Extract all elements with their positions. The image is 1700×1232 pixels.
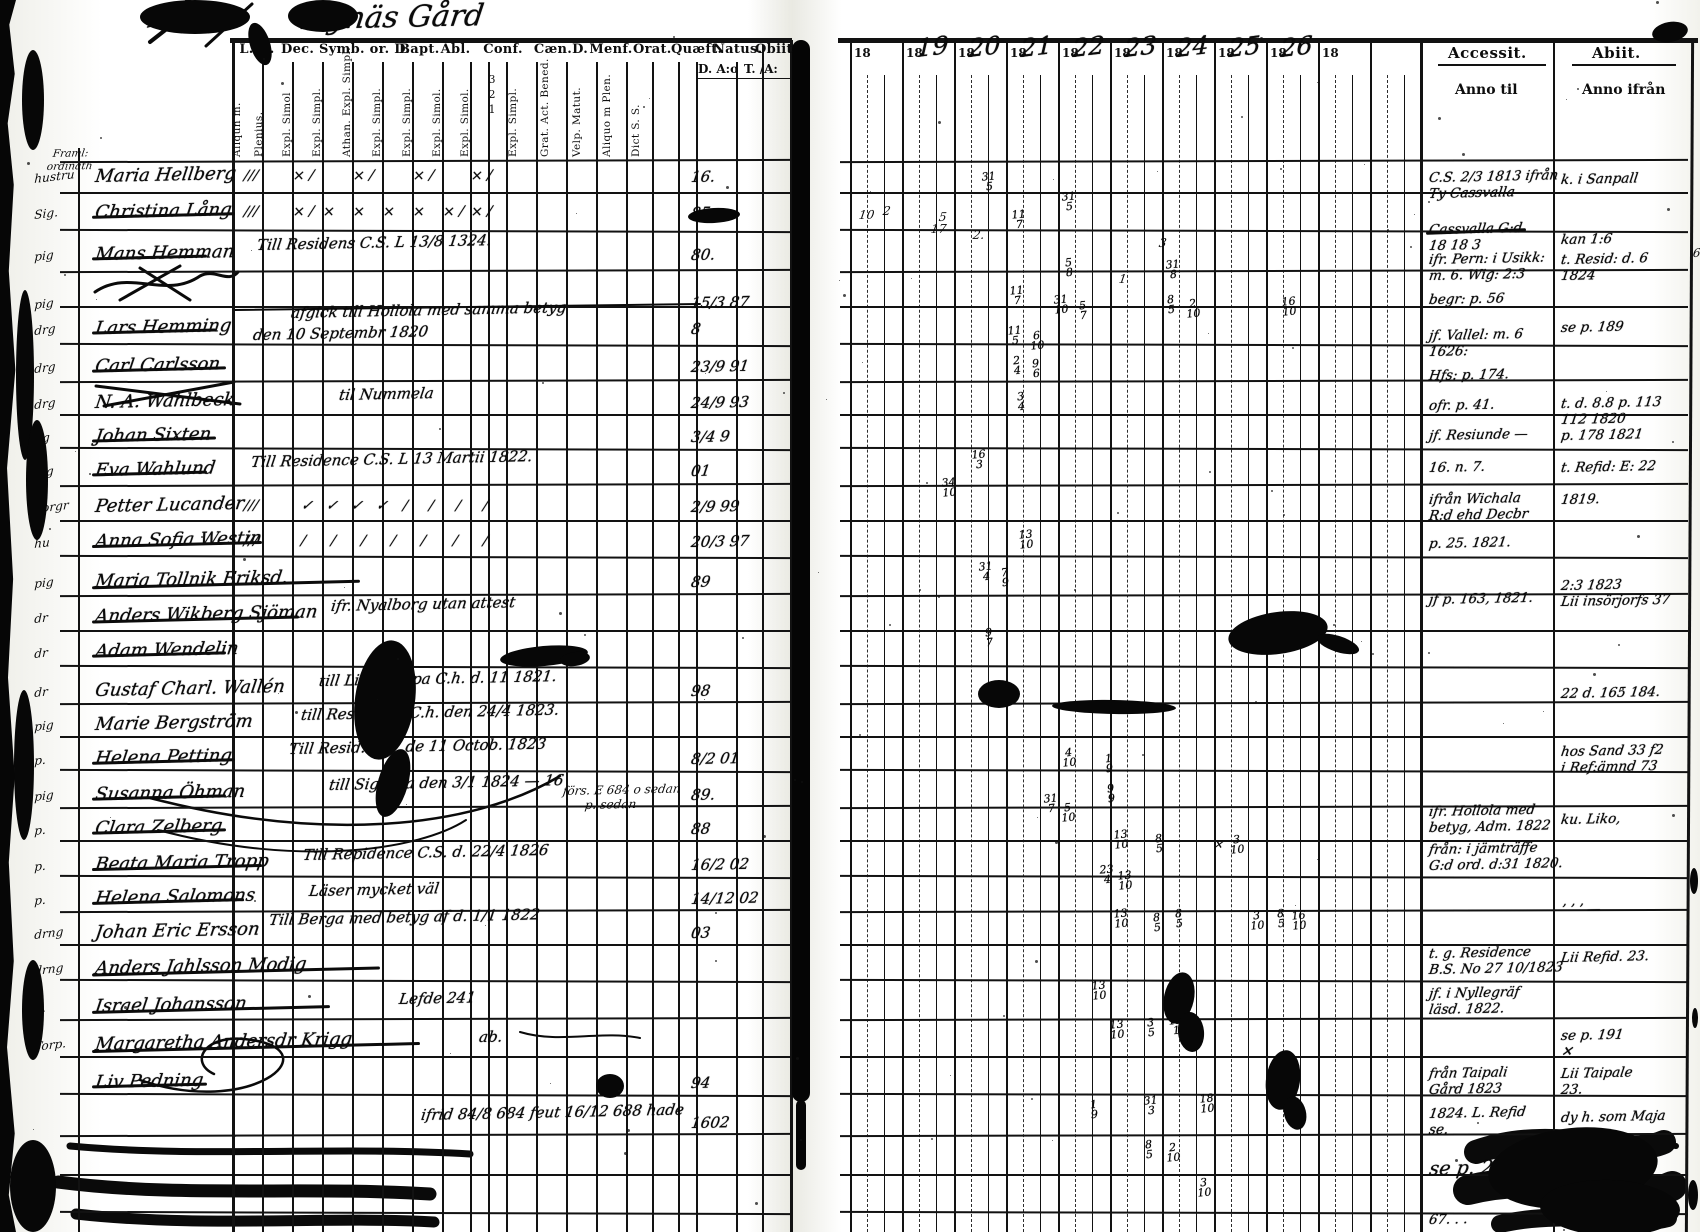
paper-speck — [1637, 535, 1640, 538]
ink-blot — [22, 960, 44, 1060]
paper-speck — [763, 835, 766, 838]
year-handwritten: 19 — [916, 30, 949, 63]
year-subcolumn-dashed-rule — [1179, 75, 1180, 1232]
examination-mark: ✓ — [300, 498, 314, 514]
column-subheader: Aliquo m Plen. — [602, 63, 613, 157]
year-subcolumn-rule — [936, 75, 937, 1232]
row-rule — [840, 306, 1688, 308]
birth-year-value: 80. — [690, 246, 716, 264]
column-subheader: Expl. Simol. — [432, 63, 443, 157]
paper-speck — [826, 399, 827, 400]
note-abiit: Lii Refid. 23. — [1560, 948, 1650, 966]
paper-speck — [526, 740, 527, 741]
row-rule — [840, 192, 1688, 194]
date-fraction: 163 — [968, 449, 990, 471]
examination-mark: × — [382, 204, 396, 220]
paper-speck — [1428, 652, 1430, 654]
row-name: Maria Hellberg — [94, 163, 237, 187]
note-abiit: se p. 191 — [1560, 1027, 1625, 1044]
row-prefix: pig — [34, 575, 54, 591]
name-column-divider — [232, 40, 235, 1232]
note-accessit: G:d ord. d:31 1820. — [1428, 855, 1564, 874]
right-page-top-border — [838, 38, 1698, 43]
column-group-header: Dec. Symb. or. D. — [281, 42, 399, 57]
date-mark: 10 — [858, 208, 875, 222]
examination-mark: × / — [442, 204, 465, 220]
date-fraction: 310 — [1246, 910, 1268, 932]
date-fraction: 85 — [1138, 1139, 1160, 1161]
date-fraction: 58 — [1058, 257, 1080, 279]
paper-speck — [1283, 514, 1285, 516]
paper-speck — [715, 912, 717, 914]
examination-mark: × / — [412, 168, 435, 184]
row-annotation: Lefde 241 — [398, 988, 477, 1008]
obiit-column-rule — [762, 45, 764, 1232]
note-accessit: B.S. No 27 10/1823 — [1428, 959, 1564, 978]
paper-speck — [1414, 214, 1415, 215]
date-fraction: 510 — [1057, 802, 1079, 824]
row-prefix: drg — [34, 360, 56, 376]
note-accessit: Gård 1823 — [1428, 1080, 1503, 1098]
birth-year-value: 16. — [690, 168, 716, 186]
note-abiit: ʼ ʼ ʼ — — [1560, 901, 1602, 918]
row-name: Marie Bergström — [94, 711, 254, 735]
paper-speck — [450, 1053, 451, 1054]
paper-speck — [1622, 688, 1624, 690]
row-prefix: pig — [34, 788, 54, 804]
note-accessit: Ty Cassvalla — [1428, 184, 1516, 202]
row-prefix: pig — [34, 296, 54, 312]
birth-year-value: 1602 — [690, 1113, 731, 1132]
row-name: Johan Eric Ersson — [94, 919, 261, 943]
note-accessit: från Taipali — [1428, 1064, 1509, 1082]
date-fraction: 1310 — [1114, 870, 1136, 892]
note-accessit: m. 6. Wig: 2:3 — [1428, 266, 1526, 284]
date-fraction: 1310 — [1110, 908, 1132, 930]
date-mark: 2 — [882, 204, 892, 218]
pen-flourish — [520, 1032, 640, 1038]
note-abiit: 112 1820 — [1560, 411, 1627, 428]
note-abiit: t. d. 8.8 p. 113 — [1560, 394, 1662, 412]
row-annotation: p. sedan — [584, 797, 637, 812]
paper-speck — [1333, 624, 1335, 626]
paper-speck — [1438, 117, 1441, 120]
date-fraction: 19 — [1098, 753, 1120, 775]
date-fraction: 115 — [1004, 325, 1026, 347]
note-accessit: R:d ehd Decbr — [1428, 506, 1529, 524]
row-annotation: til Nummela — [338, 384, 435, 404]
examination-mark: × / — [292, 204, 315, 220]
column-group-header: Obiit — [755, 42, 791, 57]
note-accessit: 67. . . — [1428, 1211, 1469, 1228]
column-subheader: Plenius. — [254, 63, 265, 157]
paper-speck — [1364, 164, 1365, 165]
date-fraction: 1310 — [1015, 529, 1037, 551]
note-abiit: 1824 — [1560, 267, 1597, 284]
paper-speck — [1317, 859, 1318, 860]
paper-speck — [406, 804, 407, 805]
note-abiit: kan 1:6 — [1560, 231, 1613, 248]
paper-speck — [1672, 814, 1675, 817]
paper-speck — [839, 280, 840, 281]
paper-speck — [201, 536, 203, 538]
row-annotation: ab. — [478, 1028, 504, 1046]
row-annotation: den 10 Septembr 1820 — [252, 322, 429, 344]
paper-speck — [870, 191, 871, 192]
row-prefix: p. — [34, 753, 46, 768]
year-subcolumn-dashed-rule — [1127, 75, 1128, 1232]
paper-speck — [124, 1006, 127, 1009]
column-subheader-123: 321 — [485, 72, 499, 117]
paper-speck — [1074, 589, 1076, 591]
paper-speck — [1618, 644, 1620, 646]
date-fraction: 117 — [1006, 285, 1028, 307]
date-mark: 3 — [1158, 236, 1168, 250]
ink-blot — [978, 680, 1020, 708]
column-subheader: Expl. Simpl. — [402, 63, 413, 157]
row-prefix: dr — [34, 610, 48, 626]
row-name: Beata Maria Tropp — [94, 850, 270, 875]
year-column-rule — [1162, 42, 1164, 1232]
row-rule — [60, 414, 792, 416]
paper-speck — [584, 634, 586, 636]
paper-speck — [64, 274, 66, 276]
examination-mark: × — [352, 204, 366, 220]
examination-mark: ✓ — [350, 498, 364, 514]
row-name: Gustaf Charl. Wallén — [94, 676, 286, 701]
year-subcolumn-rule — [1144, 75, 1145, 1232]
birth-year-value: 20/3 97 — [690, 532, 750, 551]
row-rule — [840, 944, 1688, 946]
year-column-rule — [902, 42, 904, 1232]
paper-speck — [33, 1129, 34, 1130]
paper-speck — [377, 699, 378, 700]
paper-speck — [1428, 201, 1430, 203]
paper-speck — [818, 572, 819, 573]
ink-blot — [596, 1074, 624, 1098]
note-accessit: C.S. 2/3 1813 ifrån — [1428, 167, 1559, 186]
paper-speck — [1255, 701, 1257, 703]
paper-speck — [741, 379, 742, 380]
paper-speck — [1157, 171, 1158, 172]
birth-year-value: 23/9 91 — [690, 357, 750, 376]
paper-speck — [1503, 723, 1504, 724]
paper-speck — [643, 106, 645, 108]
row-prefix: Sig. — [34, 205, 58, 222]
date-fraction: 79 — [994, 567, 1016, 589]
birth-year-value: 8 — [690, 320, 702, 338]
paper-speck — [550, 1083, 551, 1084]
note-abiit: 22 d. 165 184. — [1560, 684, 1661, 702]
date-fraction: 1810 — [1196, 1093, 1218, 1115]
note-abiit: ku. Liko, — [1560, 811, 1622, 828]
date-mark: 17 — [930, 222, 947, 236]
row-rule — [840, 840, 1688, 842]
examination-mark: × / — [470, 168, 493, 184]
date-fraction: 313 — [1140, 1095, 1162, 1117]
paper-speck — [1690, 368, 1691, 369]
paper-speck — [251, 250, 252, 251]
paper-speck — [715, 960, 717, 962]
paper-speck — [1387, 229, 1389, 231]
ink-smear — [70, 1146, 470, 1154]
column-group-header: Conf. — [473, 42, 533, 57]
row-rule — [60, 944, 792, 946]
column-subheader: Velp. Matut. — [572, 63, 583, 157]
note-abiit: Lii Taipale — [1560, 1065, 1634, 1082]
row-name: N. A. Wahlbeck — [94, 389, 236, 413]
note-accessit: ifrån Wichala — [1428, 490, 1522, 508]
note-accessit: begr: p. 56 — [1428, 290, 1505, 308]
paper-speck — [950, 1075, 951, 1076]
year-printed-prefix: 18 — [1322, 46, 1339, 60]
date-fraction: 315 — [1058, 191, 1080, 213]
year-column-rule — [850, 42, 852, 1232]
paper-speck — [1260, 37, 1263, 40]
note-abiit: p. 178 1821 — [1560, 426, 1644, 444]
paper-speck — [1118, 1021, 1119, 1022]
paper-speck — [576, 213, 577, 214]
paper-speck — [542, 382, 544, 384]
paper-speck — [27, 162, 30, 165]
year-subcolumn-dashed-rule — [919, 75, 920, 1232]
paper-speck — [89, 473, 91, 475]
paper-speck — [783, 392, 785, 394]
examination-mark: × / — [352, 168, 375, 184]
paper-speck — [1292, 347, 1294, 349]
column-subheader: Expl. Simpl. — [312, 63, 323, 157]
row-name: Clara Zelberg — [94, 815, 224, 839]
date-fraction: 1310 — [1110, 829, 1132, 851]
ink-blot — [140, 0, 250, 34]
birth-year-value: 03 — [690, 924, 712, 942]
paper-speck — [1037, 817, 1038, 818]
year-column-rule — [954, 42, 956, 1232]
paper-speck — [862, 362, 863, 363]
note-accessit: Hfs: p. 174. — [1428, 366, 1510, 384]
paper-speck — [704, 699, 705, 700]
note-abiit: k. i Sanpall — [1560, 170, 1639, 188]
year-subcolumn-rule — [1196, 75, 1197, 1232]
examination-mark: /// — [243, 168, 259, 184]
paper-speck — [1667, 208, 1670, 211]
year-subcolumn-dashed-rule — [1335, 75, 1336, 1232]
birth-year-value: 89. — [690, 786, 716, 804]
note-accessit: se. — [1428, 1122, 1449, 1138]
scanned-parish-register: Nynäs Gård 18 7 Accessit. Anno til Abiit… — [0, 0, 1700, 1232]
row-rule — [840, 520, 1688, 522]
ink-blot — [1688, 1180, 1698, 1210]
date-fraction: 3110 — [1050, 294, 1072, 316]
note-abiit: 23. — [1560, 1082, 1584, 1098]
paper-speck — [1040, 424, 1041, 425]
date-fraction: 210 — [1182, 298, 1204, 320]
paper-speck — [100, 137, 102, 139]
examination-mark: /// — [243, 204, 259, 220]
row-rule — [60, 192, 792, 194]
paper-speck — [308, 995, 311, 998]
year-subcolumn-rule — [1300, 75, 1301, 1232]
paper-speck — [1035, 960, 1038, 963]
row-annotation: Läser mycket väl — [308, 879, 440, 900]
examination-mark: ✓ — [375, 498, 389, 514]
paper-speck — [1563, 1229, 1565, 1231]
note-abiit: 2:3 1823 — [1560, 577, 1623, 594]
row-name: Petter Lucander — [94, 493, 245, 517]
paper-speck — [1117, 512, 1119, 514]
note-accessit: 16. n. 7. — [1428, 459, 1486, 476]
column-group-header: Cæn.D. — [533, 42, 589, 57]
birth-year-value: 24/9 93 — [690, 393, 750, 412]
paper-speck — [1031, 1098, 1033, 1100]
row-name: Helena Petting — [94, 745, 233, 769]
examination-mark: × — [412, 204, 426, 220]
date-fraction: 117 — [1008, 209, 1030, 231]
date-fraction: 3410 — [938, 477, 960, 499]
row-prefix: drg — [34, 322, 56, 338]
examination-mark: /// — [243, 498, 259, 514]
date-fraction: 19 — [1083, 1099, 1105, 1121]
column-subheader: Expl. Simol — [282, 63, 293, 157]
row-name: Anna Sofia Westin — [94, 528, 263, 552]
date-fraction: 35 — [1140, 1017, 1162, 1039]
row-prefix: pig — [34, 248, 54, 264]
paper-speck — [234, 1135, 236, 1137]
book-gutter — [792, 40, 810, 1102]
row-name: Susanna Öhman — [94, 781, 247, 805]
note-abiit: t. Resid: d. 6 — [1560, 250, 1649, 268]
note-abiit: i Ref:ämnd 73 — [1560, 758, 1658, 776]
year-subcolumn-dashed-rule — [1023, 75, 1024, 1232]
paper-speck — [742, 637, 744, 639]
date-fraction: 34 — [1010, 391, 1032, 413]
paper-speck — [624, 1152, 627, 1155]
paper-speck — [1052, 1140, 1053, 1141]
paper-speck — [1142, 754, 1144, 756]
paper-speck — [1593, 673, 1596, 676]
note-abiit: 1819. — [1560, 491, 1601, 508]
paper-speck — [1606, 391, 1607, 392]
ink-smear — [58, 1182, 430, 1194]
date-fraction: 410 — [1058, 747, 1080, 769]
year-column-rule — [1214, 42, 1216, 1232]
note-accessit: 1626: — [1428, 343, 1469, 360]
column-subheader: Grat. Act. Bened. — [540, 63, 551, 157]
birth-year-value: 88 — [690, 820, 712, 838]
paper-speck — [843, 294, 846, 297]
paper-speck — [1208, 333, 1209, 334]
note-accessit: jf p. 163, 1821. — [1428, 590, 1534, 608]
year-subcolumn-rule — [988, 75, 989, 1232]
paper-speck — [919, 589, 921, 591]
paper-speck — [1317, 82, 1318, 83]
birth-year-value: 14/12 02 — [690, 889, 760, 908]
note-accessit: p. 25. 1821. — [1428, 534, 1512, 552]
row-rule — [60, 1056, 792, 1058]
paper-speck — [397, 658, 399, 660]
column-subheader: Aliqun m. — [232, 63, 243, 157]
row-name: Helena Salomons — [94, 885, 257, 909]
paper-speck — [485, 925, 486, 926]
date-mark: 6 — [1692, 246, 1700, 260]
paper-speck — [794, 779, 796, 781]
note-accessit: jf. i Nyllegräf — [1428, 984, 1521, 1002]
note-abiit: t. Refid: E: 22 — [1560, 458, 1657, 476]
paper-speck — [281, 82, 284, 85]
column-group-header: Quæft. — [671, 42, 713, 57]
year-handwritten: 23 — [1124, 30, 1157, 63]
paper-speck — [796, 1057, 799, 1060]
birth-year-value: 98 — [690, 682, 712, 700]
natus-sublabel: T. /A: — [744, 62, 778, 76]
paper-speck — [243, 558, 246, 561]
row-prefix: p. — [34, 859, 46, 874]
date-fraction: 310 — [1193, 1177, 1215, 1199]
year-printed-prefix: 18 — [854, 46, 871, 60]
examination-mark: × / — [470, 204, 493, 220]
paper-speck — [673, 36, 675, 38]
paper-speck — [1361, 641, 1362, 642]
row-name: Eva Wahlund — [94, 458, 217, 481]
year-subcolumn-dashed-rule — [1075, 75, 1076, 1232]
paper-speck — [75, 451, 76, 452]
date-fraction: 318 — [1162, 259, 1184, 281]
birth-year-value: 15/3 87 — [690, 293, 750, 312]
paper-speck — [931, 1138, 933, 1140]
year-handwritten: 22 — [1072, 30, 1105, 63]
paper-speck — [559, 612, 562, 615]
ink-blot — [1690, 868, 1698, 894]
row-prefix: dr — [34, 645, 48, 661]
column-group-header: Menf. — [589, 42, 633, 57]
left-page-left-rule — [78, 148, 80, 1232]
paper-speck — [938, 596, 940, 598]
note-accessit: 1824. L. Refid — [1428, 1104, 1527, 1122]
paper-speck — [800, 1139, 802, 1141]
column-subheader: Expl. Simpl. — [508, 63, 519, 157]
row-rule — [60, 520, 792, 522]
row-name: Christina Lång — [94, 199, 233, 223]
note-abiit: se p. 189 — [1560, 319, 1625, 336]
note-accessit: jf. Resiunde — — [1428, 426, 1529, 444]
row-name: Adam Wendelin — [94, 638, 240, 662]
paper-speck — [49, 528, 51, 530]
ink-smear — [76, 1214, 434, 1222]
paper-speck — [1295, 905, 1296, 906]
paper-speck — [801, 781, 803, 783]
note-abiit: dy h. som Maja — [1560, 1108, 1667, 1126]
date-fraction: 85 — [1146, 912, 1168, 934]
paper-speck — [1674, 1222, 1675, 1223]
examination-mark: × — [322, 204, 336, 220]
year-subcolumn-dashed-rule — [1387, 75, 1388, 1232]
date-fraction: 85 — [1168, 908, 1190, 930]
ink-blot — [22, 50, 44, 150]
paper-speck — [1577, 88, 1579, 90]
abiit-underline — [1572, 64, 1676, 66]
date-fraction: 1610 — [1278, 296, 1300, 318]
paper-speck — [1477, 1122, 1479, 1124]
year-subcolumn-rule — [884, 75, 885, 1232]
paper-speck — [1271, 490, 1273, 492]
paper-speck — [1462, 153, 1465, 156]
paper-speck — [926, 482, 928, 484]
year-column-rule — [1370, 42, 1372, 1232]
date-fraction: 96 — [1025, 358, 1047, 380]
natus-sublabel-rule — [696, 78, 790, 79]
year-subcolumn-rule — [1092, 75, 1093, 1232]
column-group-header: Natus. — [713, 42, 755, 57]
